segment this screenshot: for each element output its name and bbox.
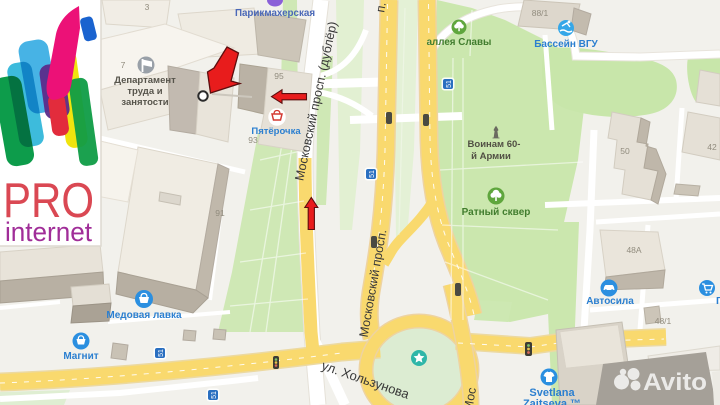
svg-text:91: 91 bbox=[215, 208, 225, 218]
svg-text:48А: 48А bbox=[626, 245, 641, 255]
svg-text:51: 51 bbox=[446, 80, 453, 88]
svg-text:Zaitseva ™: Zaitseva ™ bbox=[523, 398, 581, 405]
svg-text:7: 7 bbox=[121, 60, 126, 70]
svg-text:51: 51 bbox=[158, 349, 165, 357]
svg-text:51: 51 bbox=[211, 391, 218, 399]
svg-text:Автосила: Автосила bbox=[586, 296, 634, 307]
svg-text:93: 93 bbox=[248, 135, 258, 145]
svg-text:42: 42 bbox=[707, 142, 717, 152]
svg-text:Пятёрочка: Пятёрочка bbox=[251, 126, 301, 137]
svg-text:51: 51 bbox=[369, 170, 376, 178]
svg-text:Бассейн ВГУ: Бассейн ВГУ bbox=[534, 39, 598, 50]
svg-text:труда и: труда и bbox=[127, 86, 162, 97]
svg-text:Г: Г bbox=[716, 295, 720, 307]
svg-text:аллея Славы: аллея Славы bbox=[427, 37, 492, 48]
svg-text:Медовая лавка: Медовая лавка bbox=[106, 310, 182, 321]
svg-text:Парикмахерская: Парикмахерская bbox=[235, 8, 315, 19]
svg-text:й Армии: й Армии bbox=[471, 151, 511, 162]
svg-text:3: 3 bbox=[145, 2, 150, 12]
svg-text:Воинам 60-: Воинам 60- bbox=[468, 139, 521, 150]
svg-text:Департамент: Департамент bbox=[114, 75, 176, 86]
svg-text:занятости: занятости bbox=[121, 97, 168, 108]
svg-text:Мос: Мос bbox=[461, 386, 479, 405]
svg-text:88/1: 88/1 bbox=[532, 8, 549, 18]
svg-text:internet: internet bbox=[5, 217, 92, 247]
svg-text:48/1: 48/1 bbox=[655, 316, 672, 326]
svg-text:Avito: Avito bbox=[643, 369, 707, 396]
svg-text:95: 95 bbox=[274, 71, 284, 81]
svg-text:Магнит: Магнит bbox=[63, 351, 98, 362]
svg-text:Ратный сквер: Ратный сквер bbox=[462, 207, 531, 218]
svg-text:50: 50 bbox=[620, 146, 630, 156]
